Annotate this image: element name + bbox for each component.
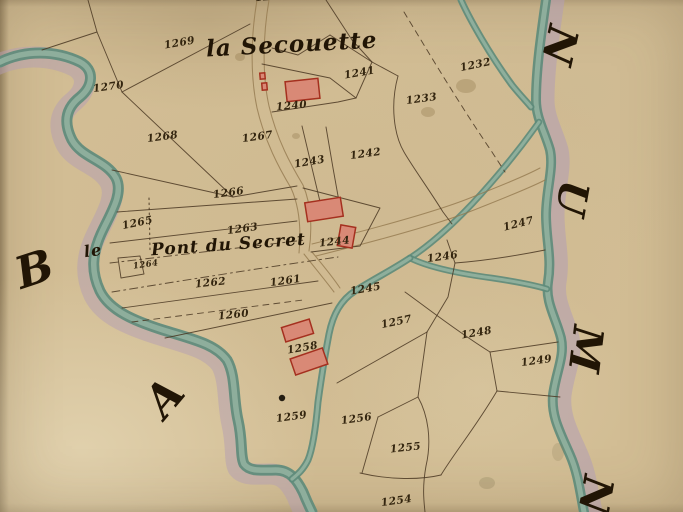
parcel-number: 1258 [286,340,319,356]
parcel-number: 1249 [520,354,552,369]
parcel-number: 1254 [380,494,412,509]
label-layer: la SecouettePont du SecretleBANUMN123912… [0,0,683,512]
margin-letter-a: A [137,371,193,425]
margin-letter-m: M [562,323,609,374]
parcel-number: 1267 [241,130,273,145]
parcel-number: 1248 [460,325,493,341]
parcel-number: 1242 [349,147,381,162]
parcel-number: 1269 [163,35,196,51]
parcel-number: 1260 [218,308,250,322]
parcel-number: 1240 [276,100,308,113]
parcel-number: 1265 [121,215,154,232]
parcel-number: 1233 [405,92,437,107]
margin-letter-n-top: N [534,22,584,69]
parcel-number: 1239 [255,0,287,4]
parcel-number: 1255 [390,441,422,455]
cadastral-map: la SecouettePont du SecretleBANUMN123912… [0,0,683,512]
parcel-number: 1270 [92,80,124,95]
parcel-number: 1264 [133,259,160,271]
parcel-number: 1232 [459,57,492,74]
parcel-number: 1243 [293,154,326,170]
parcel-number: 1268 [146,130,178,145]
parcel-number: 1247 [502,215,535,233]
parcel-number: 1246 [426,250,458,265]
parcel-number: 1261 [269,274,301,289]
margin-letter-u: U [549,177,594,218]
parcel-number: 1262 [195,276,227,290]
parcel-number: 1245 [349,281,382,297]
margin-letter-b: B [10,243,59,296]
parcel-number: 1257 [380,314,413,331]
label-la-secouette: la Secouette [206,29,378,61]
parcel-number: 1241 [343,65,376,81]
label-le: le [83,242,103,260]
margin-letter-n-bottom: N [571,472,619,512]
parcel-number: 1266 [212,186,244,201]
parcel-number: 1244 [319,235,351,249]
parcel-number: 1259 [275,410,307,425]
parcel-number: 1256 [340,412,372,427]
